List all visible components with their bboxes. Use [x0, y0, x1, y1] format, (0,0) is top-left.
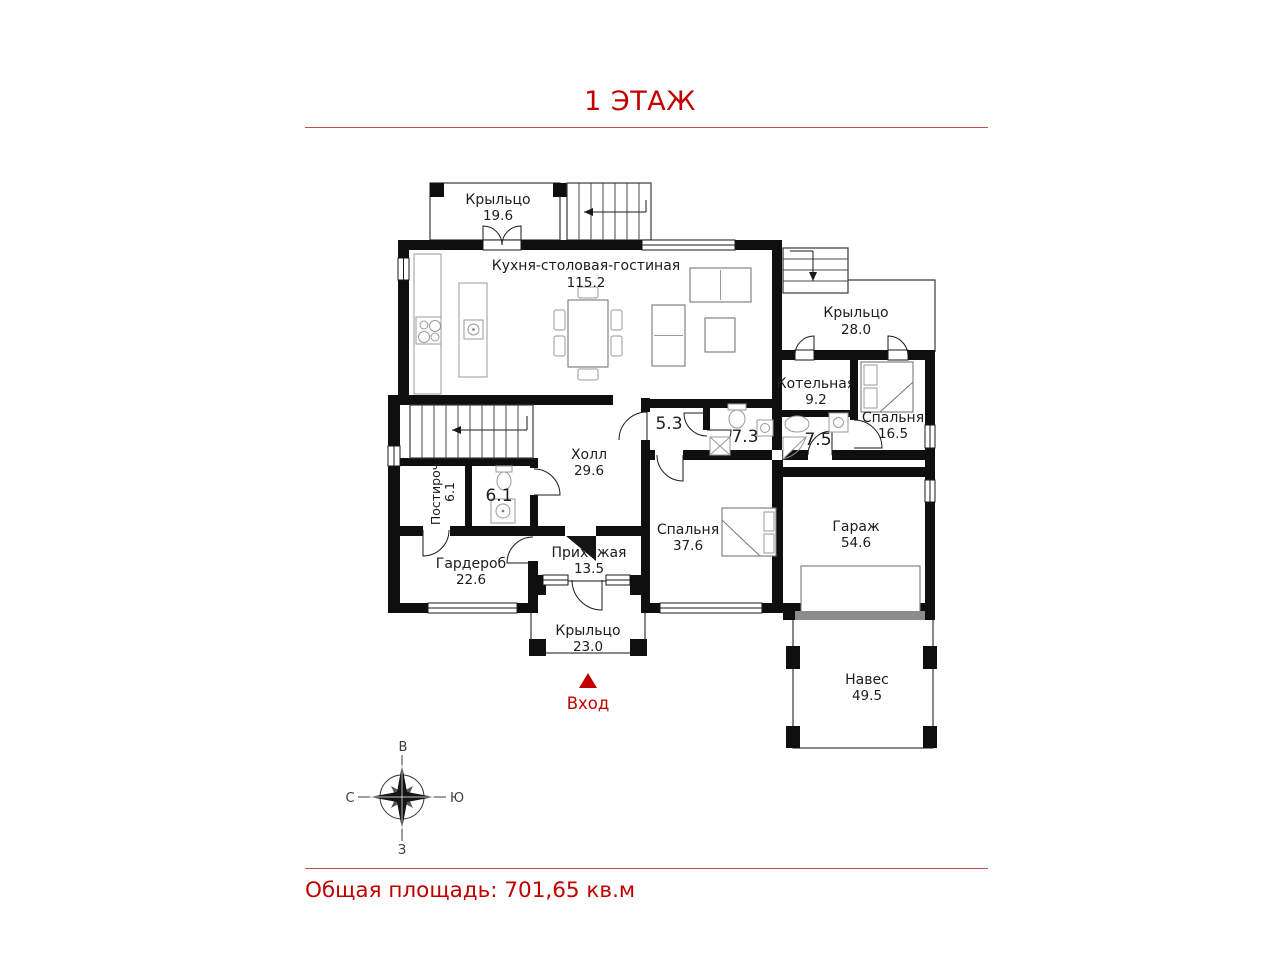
entrance-marker: Вход: [567, 673, 610, 713]
room-area-hall: 29.6: [574, 463, 604, 479]
compass-label-north: С: [345, 791, 354, 806]
exterior-stairs-top-icon: [567, 183, 651, 240]
floor-plan-drawing: Кухня-столовая-гостиная 115.2 Крыльцо 19…: [0, 0, 1280, 960]
compass-label-east: В: [399, 740, 408, 755]
floor-plan-page: 1 ЭТАЖ Общая площадь: 701,65 кв.м: [0, 0, 1280, 960]
room-area-kitchen: 115.2: [567, 275, 606, 291]
room-label-kitchen: Кухня-столовая-гостиная: [492, 258, 680, 274]
room-label-garage: Гараж: [832, 519, 880, 535]
room-label-porch-right: Крыльцо: [823, 305, 888, 321]
room-area-bath-73: 7.3: [731, 427, 758, 447]
room-label-laundry: Постироч.: [428, 459, 443, 525]
room-area-bedroom-small: 16.5: [878, 426, 908, 442]
room-label-canopy: Навес: [845, 672, 889, 688]
room-label-entry-hall: Прихожая: [552, 545, 627, 561]
compass-label-west: З: [398, 843, 406, 858]
room-area-entry-hall: 13.5: [574, 561, 604, 577]
garage-gate: [795, 611, 925, 620]
room-label-bedroom-small: Спальня: [862, 410, 924, 426]
room-area-porch-top: 19.6: [483, 208, 513, 224]
room-label-hall: Холл: [571, 447, 607, 463]
room-area-boiler: 9.2: [805, 392, 826, 408]
room-area-garage: 54.6: [841, 535, 871, 551]
room-label-porch-bottom: Крыльцо: [555, 623, 620, 639]
entrance-arrow-icon: [579, 673, 597, 688]
room-area-bedroom-big: 37.6: [673, 538, 703, 554]
room-area-canopy: 49.5: [852, 688, 882, 704]
compass-label-south: Ю: [450, 791, 464, 806]
room-labels: Кухня-столовая-гостиная 115.2 Крыльцо 19…: [428, 192, 924, 704]
room-area-bath-75: 7.5: [804, 430, 831, 450]
room-label-porch-top: Крыльцо: [465, 192, 530, 208]
room-area-wardrobe: 22.6: [456, 572, 486, 588]
room-area-store-53: 5.3: [655, 414, 682, 434]
entrance-label: Вход: [567, 694, 610, 713]
room-area-porch-bottom: 23.0: [573, 639, 603, 655]
room-label-boiler: Котельная: [777, 376, 856, 392]
compass-rose-icon: В С Ю З: [345, 740, 464, 858]
room-label-bedroom-big: Спальня: [657, 522, 719, 538]
garage-door-panel: [801, 566, 920, 612]
interior-stairs-icon: [410, 405, 533, 458]
room-area-porch-right: 28.0: [841, 322, 871, 338]
room-area-laundry: 6.1: [442, 482, 457, 502]
exterior-stairs-right-icon: [783, 248, 848, 293]
room-area-wc: 6.1: [485, 486, 512, 506]
room-label-wardrobe: Гардероб: [436, 556, 506, 572]
